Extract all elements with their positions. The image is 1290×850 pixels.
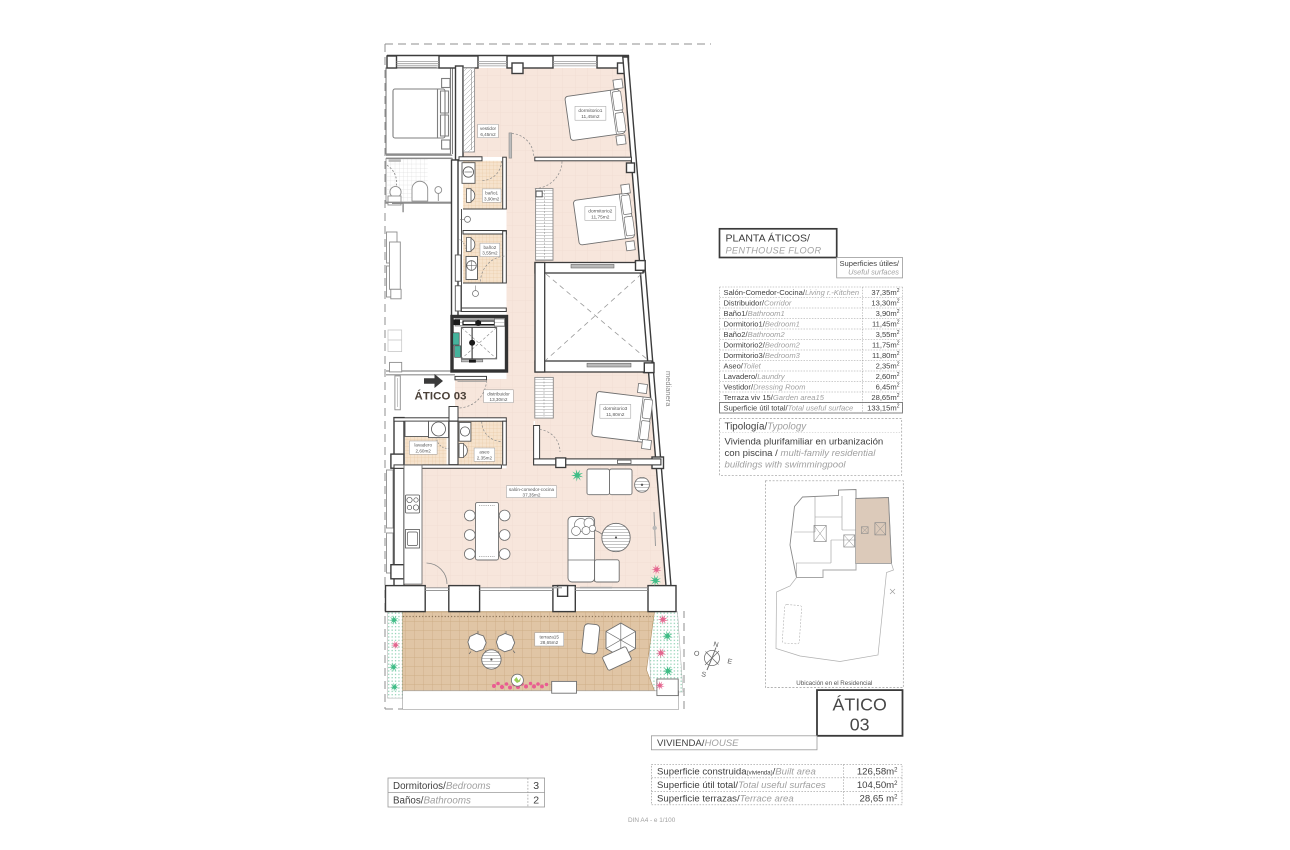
svg-text:N: N	[713, 641, 720, 649]
svg-text:DIN A4 - e 1/100: DIN A4 - e 1/100	[628, 817, 676, 824]
svg-text:6,45m2: 6,45m2	[876, 383, 900, 392]
svg-text:2,60m2: 2,60m2	[416, 448, 432, 453]
svg-text:3,90m2: 3,90m2	[484, 196, 500, 201]
svg-text:3,55m2: 3,55m2	[482, 251, 498, 256]
svg-text:Superficies útiles/: Superficies útiles/	[839, 259, 899, 268]
svg-text:O: O	[693, 650, 701, 658]
svg-text:dormitorio3: dormitorio3	[603, 406, 627, 412]
svg-text:Ubicación en el Residencial: Ubicación en el Residencial	[796, 680, 872, 687]
svg-text:Superficie terrazas/Terrace ar: Superficie terrazas/Terrace area	[657, 794, 794, 805]
svg-text:Distribuidor/Corridor: Distribuidor/Corridor	[724, 299, 792, 308]
svg-text:con piscina / multi-family re: con piscina / multi-family residential	[725, 448, 877, 459]
svg-text:6,45m2: 6,45m2	[480, 132, 496, 137]
svg-text:28,65 m2: 28,65 m2	[859, 794, 898, 805]
svg-text:Useful surfaces: Useful surfaces	[848, 268, 899, 277]
svg-text:terraza15: terraza15	[539, 634, 559, 639]
svg-text:13,30m2: 13,30m2	[490, 397, 508, 402]
svg-text:Vivienda plurifamiliar en urba: Vivienda plurifamiliar en urbanización	[725, 437, 884, 448]
svg-text:Baño2/Bathroom2: Baño2/Bathroom2	[724, 330, 786, 339]
svg-text:11,45m2: 11,45m2	[581, 114, 600, 120]
svg-text:baño1: baño1	[485, 191, 498, 196]
svg-text:Dormitorio3/Bedroom3: Dormitorio3/Bedroom3	[724, 351, 801, 360]
svg-text:Superficie útil total/Total us: Superficie útil total/Total useful surfa…	[724, 404, 854, 413]
svg-text:baño2: baño2	[484, 245, 497, 250]
svg-text:11,80m2: 11,80m2	[872, 351, 900, 360]
svg-text:11,75m2: 11,75m2	[591, 214, 610, 220]
svg-text:Superficie útil total/Total us: Superficie útil total/Total useful surfa…	[657, 780, 826, 791]
svg-text:Dormitorio1/Bedroom1: Dormitorio1/Bedroom1	[724, 320, 800, 329]
svg-text:37,35m2: 37,35m2	[871, 288, 899, 297]
svg-text:ÁTICO 03: ÁTICO 03	[415, 390, 467, 403]
svg-text:salón-comedor-cocina: salón-comedor-cocina	[509, 487, 555, 492]
svg-text:dormitorio1: dormitorio1	[578, 108, 602, 114]
svg-text:37,35m2: 37,35m2	[523, 492, 541, 497]
svg-text:3: 3	[533, 780, 539, 792]
svg-text:Baño1/Bathroom1: Baño1/Bathroom1	[724, 309, 785, 318]
svg-text:Dormitorios/Bedrooms: Dormitorios/Bedrooms	[393, 781, 491, 792]
svg-text:Dormitorio2/Bedroom2: Dormitorio2/Bedroom2	[724, 341, 801, 350]
svg-text:28,65m2: 28,65m2	[871, 393, 899, 402]
svg-text:126,58m2: 126,58m2	[857, 767, 898, 778]
svg-text:Salón-Comedor-Cocina/Living r.: Salón-Comedor-Cocina/Living r.-Kitchen	[724, 288, 860, 297]
svg-text:Lavadero/Laundry: Lavadero/Laundry	[724, 372, 786, 381]
svg-text:aseo: aseo	[479, 450, 489, 455]
svg-text:E: E	[727, 658, 734, 666]
svg-text:03: 03	[850, 715, 870, 735]
svg-text:buildings with swimmingpool: buildings with swimmingpool	[725, 460, 847, 471]
svg-text:dormitorio2: dormitorio2	[588, 208, 612, 214]
svg-text:3,90m2: 3,90m2	[876, 309, 900, 318]
svg-text:S: S	[701, 671, 708, 679]
svg-text:Vestidor/Dressing Room: Vestidor/Dressing Room	[724, 383, 806, 392]
svg-text:13,30m2: 13,30m2	[871, 299, 899, 308]
svg-text:2,60m2: 2,60m2	[876, 372, 900, 381]
svg-text:Terraza viv 15/Garden area15: Terraza viv 15/Garden area15	[724, 393, 825, 402]
svg-text:28,65m2: 28,65m2	[540, 640, 558, 645]
svg-text:vestidor: vestidor	[480, 126, 497, 131]
svg-text:medianera: medianera	[664, 371, 673, 407]
svg-text:104,50m2: 104,50m2	[857, 780, 898, 791]
svg-text:Superficie construida(vivienda: Superficie construida(vivienda)/Built ar…	[657, 767, 816, 778]
svg-text:3,55m2: 3,55m2	[876, 330, 900, 339]
svg-text:11,80m2: 11,80m2	[606, 412, 625, 418]
svg-text:Aseo/Toilet: Aseo/Toilet	[724, 362, 762, 371]
svg-text:PENTHOUSE FLOOR: PENTHOUSE FLOOR	[726, 246, 822, 256]
svg-text:Baños/Bathrooms: Baños/Bathrooms	[393, 795, 471, 806]
svg-text:Tipología/Typology: Tipología/Typology	[725, 422, 808, 433]
svg-text:2,35m2: 2,35m2	[876, 362, 900, 371]
svg-text:distribuidor: distribuidor	[487, 391, 510, 396]
svg-text:133,15m2: 133,15m2	[867, 404, 900, 413]
svg-text:2: 2	[533, 794, 539, 806]
svg-text:PLANTA ÁTICOS/: PLANTA ÁTICOS/	[726, 232, 810, 245]
svg-text:lavadero: lavadero	[414, 443, 432, 448]
svg-text:2,35m2: 2,35m2	[477, 455, 493, 460]
svg-text:ÁTICO: ÁTICO	[833, 695, 887, 715]
svg-text:VIVIENDA/HOUSE: VIVIENDA/HOUSE	[657, 738, 739, 749]
svg-text:11,75m2: 11,75m2	[872, 341, 900, 350]
svg-text:11,45m2: 11,45m2	[872, 320, 900, 329]
